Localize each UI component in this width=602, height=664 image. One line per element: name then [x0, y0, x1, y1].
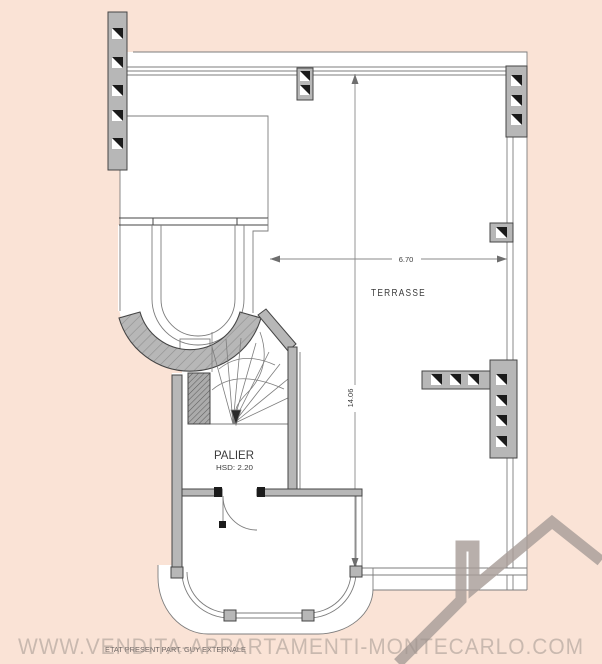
bay-mullion	[224, 610, 236, 621]
bay-mullion	[350, 566, 362, 577]
bay-window-floor	[158, 565, 373, 634]
dim-height-label: 14.06	[346, 389, 355, 408]
floor-plan-image: 6.70 14.06	[0, 0, 602, 664]
palier-right-wall	[288, 347, 297, 495]
bay-mullion	[302, 610, 314, 621]
dim-width-label: 6.70	[399, 255, 414, 264]
door-wall-right	[257, 489, 362, 496]
bay-mullion	[171, 567, 183, 578]
door-jamb-left	[214, 487, 222, 497]
palier-left-wall	[172, 375, 182, 572]
terrace-label: TERRASSE	[371, 288, 426, 299]
hatched-wall-block	[188, 373, 210, 424]
palier-height-label: HSD: 2.20	[216, 463, 253, 472]
door-jamb-right	[257, 487, 265, 497]
floor-plan-svg: 6.70 14.06	[0, 0, 602, 664]
watermark-site: WWW.VENDITA-APPARTAMENTI-MONTECARLO.COM	[18, 634, 584, 659]
palier-label: PALIER	[214, 448, 254, 462]
